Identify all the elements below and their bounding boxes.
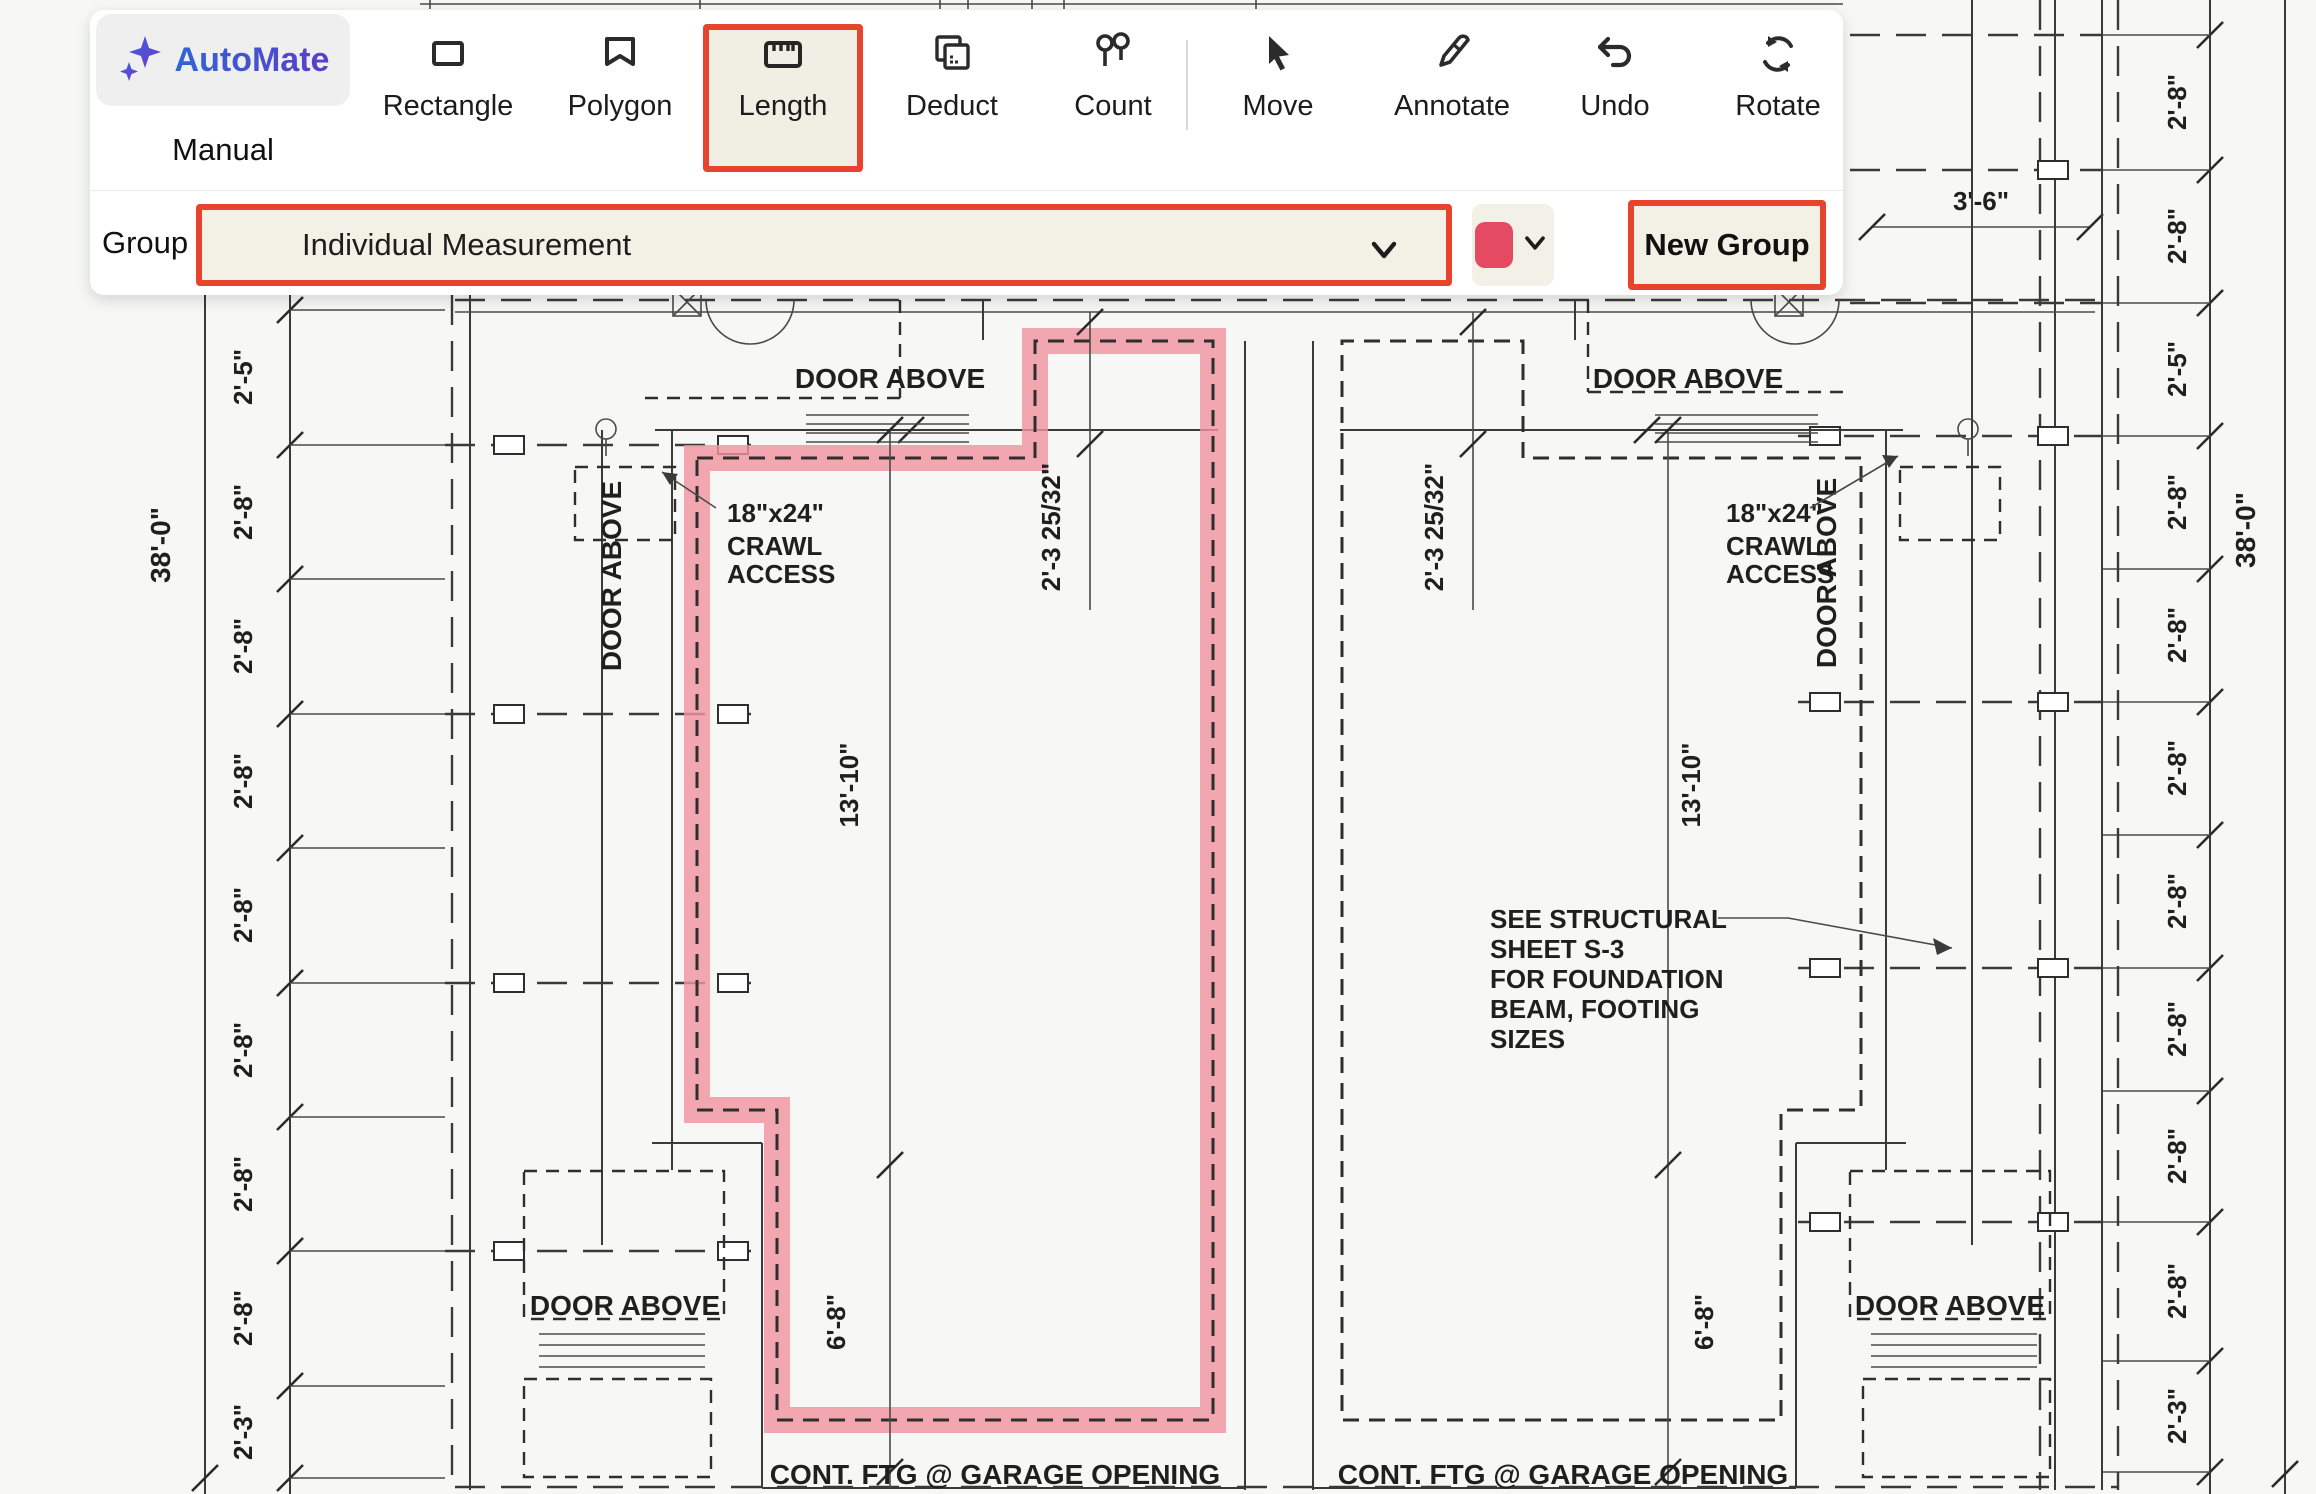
tool-label: Rectangle	[373, 90, 523, 123]
group-row: Group Individual Measurement New Group	[90, 191, 1843, 295]
door-above-label: DOOR ABOVE	[1593, 363, 1783, 394]
chevron-down-icon	[1519, 227, 1551, 264]
door-above-label: DOOR ABOVE	[1855, 1290, 2045, 1321]
dim-label: 2'-8"	[2162, 1001, 2192, 1057]
interior-dimensions: 13'-10" 6'-8" 13'-10" 6'-8" 2'-3 25/32" …	[821, 309, 1719, 1488]
undo-icon	[1540, 26, 1690, 82]
tool-deduct[interactable]: Deduct	[877, 26, 1027, 123]
tool-label: Count	[1038, 90, 1188, 123]
crawl-access-label: 18"x24"	[1726, 498, 1823, 528]
dim-label: 2'-3"	[2162, 1388, 2192, 1444]
dim-label: 2'-3 25/32"	[1036, 463, 1066, 591]
top-dimension-strip	[420, 0, 1843, 9]
dim-label: 2'-8"	[2162, 1263, 2192, 1319]
structural-note: SEE STRUCTURAL	[1490, 904, 1727, 934]
right-dimension-chain: 2'-8" 2'-8" 2'-5" 2'-8" 2'-8" 2'-8" 2'-8…	[2102, 0, 2298, 1494]
automate-tab[interactable]: AutoMate	[96, 14, 350, 106]
polygon-icon	[545, 26, 695, 82]
tool-label: Undo	[1540, 90, 1690, 123]
dim-label: 2'-3 25/32"	[1419, 463, 1449, 591]
structural-note: SIZES	[1490, 1024, 1565, 1054]
dim-label: 2'-8"	[228, 1022, 258, 1078]
rotate-icon	[1703, 26, 1853, 82]
color-swatch	[1475, 222, 1513, 268]
tool-annotate[interactable]: Annotate	[1377, 26, 1527, 123]
dim-label: 2'-8"	[2162, 740, 2192, 796]
takeoff-toolbar: AutoMate Manual Rectangle Polygon Length	[90, 10, 1843, 295]
group-dropdown-value: Individual Measurement	[302, 227, 631, 263]
dim-label: 2'-8"	[228, 1156, 258, 1212]
crawl-access-label: ACCESS	[1726, 559, 1834, 589]
dim-label: 2'-8"	[2162, 74, 2192, 130]
cont-ftg-label: CONT. FTG @ GARAGE OPENING	[1338, 1459, 1788, 1490]
dim-label: 3'-6"	[1953, 186, 2009, 216]
tool-row: AutoMate Manual Rectangle Polygon Length	[90, 10, 1843, 191]
door-above-vertical-label: DOOR ABOVE	[596, 481, 627, 671]
crawl-access-label: CRAWL	[1726, 531, 1821, 561]
length-ruler-icon	[708, 26, 858, 82]
cont-ftg-label: CONT. FTG @ GARAGE OPENING	[770, 1459, 1220, 1490]
tool-label: Length	[708, 90, 858, 123]
crawl-access-label: CRAWL	[727, 531, 822, 561]
tool-label: Rotate	[1703, 90, 1853, 123]
dim-label: 2'-8"	[2162, 474, 2192, 530]
dim-label: 2'-8"	[2162, 607, 2192, 663]
tool-length[interactable]: Length	[708, 26, 858, 123]
top-wall	[455, 288, 2095, 344]
foundation-dashed	[697, 341, 1861, 1420]
tool-label: Polygon	[545, 90, 695, 123]
tool-count[interactable]: Count	[1038, 26, 1188, 123]
group-dropdown[interactable]: Individual Measurement	[196, 204, 1452, 286]
dim-label: 2'-8"	[228, 484, 258, 540]
door-above-label: DOOR ABOVE	[530, 1290, 720, 1321]
dim-3-6: 3'-6"	[1859, 186, 2103, 240]
overall-dim-right: 38'-0"	[2230, 492, 2261, 568]
dim-label: 2'-8"	[2162, 1128, 2192, 1184]
dim-label: 2'-8"	[2162, 873, 2192, 929]
tool-rotate[interactable]: Rotate	[1703, 26, 1853, 123]
automate-label: AutoMate	[175, 41, 330, 80]
tool-polygon[interactable]: Polygon	[545, 26, 695, 123]
dim-label: 6'-8"	[1689, 1294, 1719, 1350]
crawl-access-label: ACCESS	[727, 559, 835, 589]
tool-undo[interactable]: Undo	[1540, 26, 1690, 123]
dim-label: 2'-5"	[228, 349, 258, 405]
door-above-label: DOOR ABOVE	[795, 363, 985, 394]
tool-label: Move	[1203, 90, 1353, 123]
color-picker-dropdown[interactable]	[1472, 204, 1554, 286]
count-pins-icon	[1038, 26, 1188, 82]
structural-note: SHEET S-3	[1490, 934, 1624, 964]
dim-label: 2'-8"	[228, 753, 258, 809]
annotate-pen-icon	[1377, 26, 1527, 82]
dim-label: 6'-8"	[821, 1294, 851, 1350]
deduct-icon	[877, 26, 1027, 82]
dim-label: 2'-3"	[228, 1404, 258, 1460]
dim-label: 2'-8"	[228, 887, 258, 943]
structural-note: BEAM, FOOTING	[1490, 994, 1699, 1024]
dim-label: 2'-5"	[2162, 341, 2192, 397]
dim-label: 2'-8"	[228, 618, 258, 674]
tool-label: Annotate	[1377, 90, 1527, 123]
dim-label: 2'-8"	[228, 1290, 258, 1346]
overall-dim-left: 38'-0"	[145, 507, 176, 583]
dim-label: 13'-10"	[834, 742, 864, 827]
tool-rectangle[interactable]: Rectangle	[373, 26, 523, 123]
structural-note: FOR FOUNDATION	[1490, 964, 1724, 994]
new-group-button[interactable]: New Group	[1628, 200, 1826, 290]
rectangle-icon	[373, 26, 523, 82]
plan-labels: DOOR ABOVE DOOR ABOVE DOOR ABOVE DOOR AB…	[530, 363, 2045, 1490]
tool-move[interactable]: Move	[1203, 26, 1353, 123]
dim-label: 13'-10"	[1676, 742, 1706, 827]
tool-label: Deduct	[877, 90, 1027, 123]
manual-tab[interactable]: Manual	[96, 132, 350, 168]
left-dimension-chain: 2'-5" 2'-8" 2'-8" 2'-8" 2'-8" 2'-8" 2'-8…	[145, 295, 445, 1494]
sparkle-icon	[117, 34, 165, 87]
dim-label: 2'-8"	[2162, 208, 2192, 264]
crawl-access-label: 18"x24"	[727, 498, 824, 528]
move-cursor-icon	[1203, 26, 1353, 82]
toolbar-divider	[1186, 40, 1188, 130]
chevron-down-icon	[1364, 230, 1404, 275]
